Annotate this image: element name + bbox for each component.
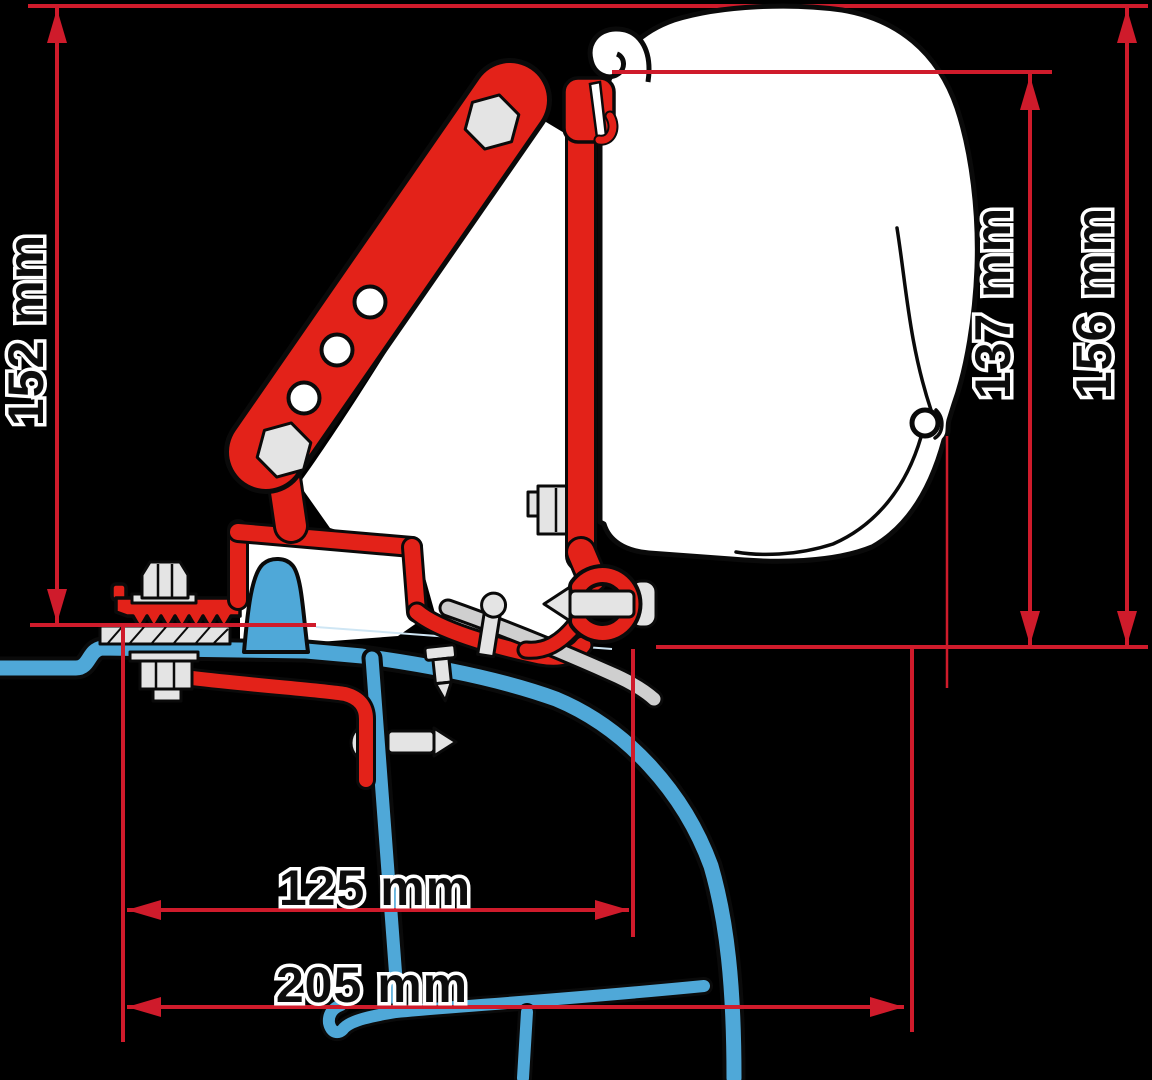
- arrow-up: [1020, 76, 1040, 110]
- dim-label-125: 125 mm: [279, 860, 471, 916]
- step-screw-tip: [435, 682, 453, 702]
- step-screw-shaft: [433, 658, 451, 684]
- dim-label-156: 156 mm: [1066, 207, 1122, 399]
- under-band: [192, 678, 366, 780]
- panel-stub: [523, 1012, 527, 1078]
- arrow-up: [1117, 9, 1137, 43]
- arrow-left: [127, 900, 161, 920]
- arm-hole: [289, 383, 320, 414]
- diagram-canvas: 152 mm 137 mm 156 mm 125 mm 205 mm: [0, 0, 1152, 1080]
- arrow-down: [1020, 611, 1040, 645]
- arrow-up: [47, 9, 67, 43]
- dim-label-152: 152 mm: [0, 234, 54, 426]
- pivot-screw-shaft: [570, 591, 634, 617]
- nut: [140, 661, 192, 689]
- case-top-curl: [590, 29, 649, 82]
- arrow-right: [595, 900, 629, 920]
- washer-plate: [100, 626, 230, 644]
- dim-label-205: 205 mm: [276, 957, 468, 1013]
- awning-case: [590, 6, 977, 561]
- bolt-head: [142, 562, 188, 598]
- lower-clamp: [192, 678, 456, 780]
- arrow-down: [1117, 611, 1137, 645]
- arrow-left: [127, 997, 161, 1017]
- arrow-down: [47, 589, 67, 623]
- arrow-right: [870, 997, 904, 1017]
- arm-hole: [322, 335, 353, 366]
- case-front-hook: [912, 410, 938, 436]
- case-body: [600, 6, 977, 561]
- arm-hole: [355, 287, 386, 318]
- screw-shaft: [388, 731, 434, 753]
- technical-diagram: 152 mm 137 mm 156 mm 125 mm 205 mm: [0, 0, 1152, 1080]
- bolt-tip: [153, 689, 181, 701]
- dim-label-137: 137 mm: [965, 207, 1021, 399]
- screw-tip: [434, 728, 456, 756]
